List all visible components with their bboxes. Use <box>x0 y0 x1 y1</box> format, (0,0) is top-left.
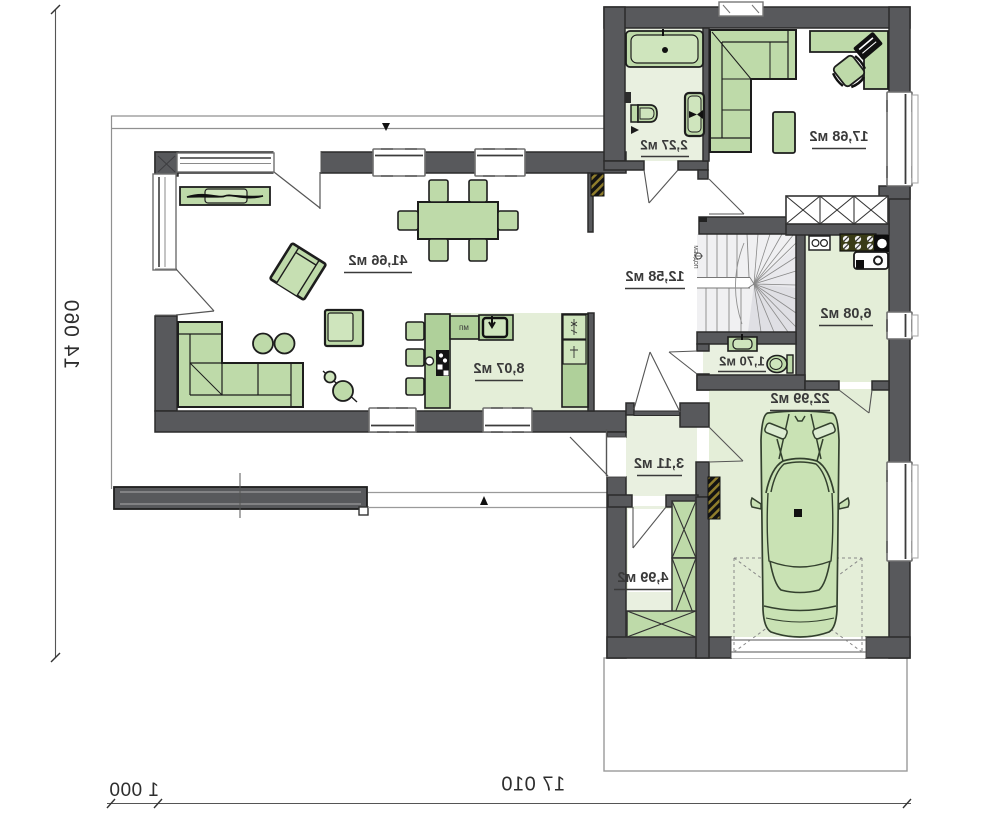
svg-text:17,68 м2: 17,68 м2 <box>809 129 868 145</box>
svg-text:2,27 м2: 2,27 м2 <box>640 138 688 153</box>
svg-text:17 010: 17 010 <box>501 773 565 795</box>
svg-text:мп: мп <box>459 323 469 332</box>
svg-text:12,58 м2: 12,58 м2 <box>625 269 684 285</box>
svg-text:14 060: 14 060 <box>59 299 82 369</box>
svg-text:4,99 м2: 4,99 м2 <box>617 570 668 586</box>
svg-text:41,66 м2: 41,66 м2 <box>348 253 407 269</box>
svg-text:1,70 м2: 1,70 м2 <box>719 353 765 368</box>
svg-text:1 000: 1 000 <box>109 780 159 801</box>
svg-text:22,99 м2: 22,99 м2 <box>770 391 829 407</box>
svg-text:3,11 м2: 3,11 м2 <box>634 456 684 472</box>
svg-text:8,07 м2: 8,07 м2 <box>473 361 524 377</box>
svg-text:6,08 м2: 6,08 м2 <box>820 306 871 322</box>
